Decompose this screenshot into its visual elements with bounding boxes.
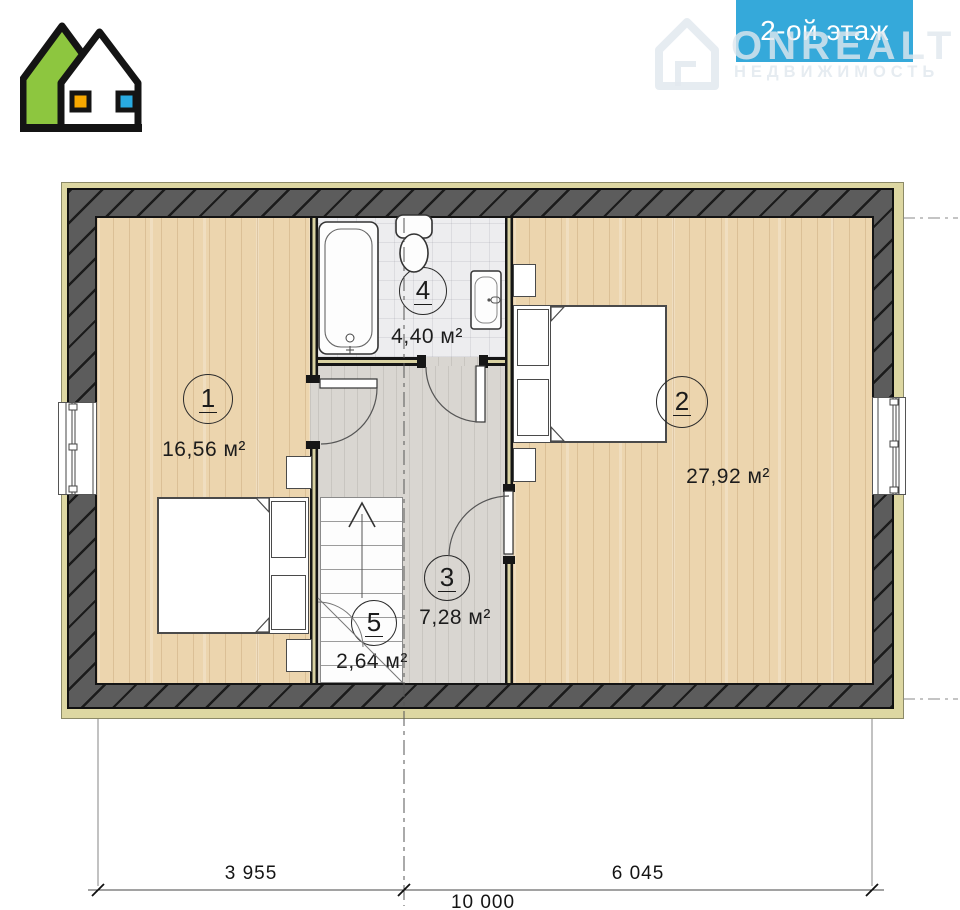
floor-plan-page: ONREALT НЕДВИЖИМОСТЬ 2-ой этаж: [0, 0, 960, 910]
toilet-icon: [396, 215, 432, 272]
watermark-subtitle: НЕДВИЖИМОСТЬ: [734, 63, 939, 82]
dimension-lines: [88, 719, 884, 896]
window-right-frame: [878, 398, 899, 494]
window-left-frame: [66, 403, 93, 494]
blanket-fold: [256, 618, 269, 632]
door-room1: [320, 379, 377, 444]
stairs-marks: [318, 503, 403, 683]
door-room2: [449, 491, 513, 556]
blanket-fold: [551, 307, 564, 321]
door-bathroom: [426, 366, 485, 422]
blanket-fold: [256, 498, 269, 512]
washbasin-icon: [471, 271, 501, 329]
watermark-house-icon: [648, 12, 728, 94]
blanket-fold: [551, 427, 564, 441]
brand-logo-houses-icon: [20, 22, 146, 136]
plan-linework: [0, 0, 960, 910]
bathtub-icon: [319, 222, 378, 354]
